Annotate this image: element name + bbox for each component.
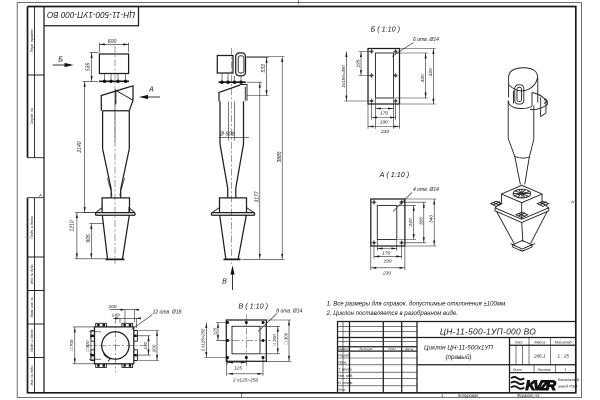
- svg-text:Взам. инв. №: Взам. инв. №: [30, 297, 34, 318]
- svg-text:□ 706: □ 706: [69, 339, 74, 351]
- svg-text:ЦН-11-500-1УП-000 ВО: ЦН-11-500-1УП-000 ВО: [47, 10, 135, 19]
- svg-text:А: А: [570, 199, 574, 204]
- svg-text:Масштаб: Масштаб: [555, 341, 573, 345]
- svg-text:Лист: Лист: [341, 347, 350, 351]
- svg-text:Б: Б: [58, 57, 63, 64]
- svg-text:190: 190: [380, 120, 388, 126]
- svg-text:Справ. №: Справ. №: [30, 108, 34, 124]
- svg-text:Масса: Масса: [534, 341, 545, 345]
- svg-text:535: 535: [86, 63, 92, 72]
- svg-text:Пров.: Пров.: [338, 360, 347, 364]
- svg-text:А: А: [38, 193, 42, 198]
- svg-text:Копировал: Копировал: [458, 393, 479, 398]
- svg-text:А: А: [148, 87, 154, 94]
- svg-text:140: 140: [111, 313, 119, 319]
- svg-text:завод РЭП: завод РЭП: [557, 384, 578, 389]
- svg-text:Утв.: Утв.: [338, 388, 346, 392]
- svg-text:905: 905: [86, 234, 92, 243]
- svg-text:2х195=390: 2х195=390: [341, 65, 346, 89]
- svg-text:№ докум.: № докум.: [359, 347, 373, 351]
- svg-text:1: 1: [441, 393, 443, 398]
- svg-text:125: 125: [234, 365, 242, 371]
- svg-text:190: 190: [383, 259, 391, 265]
- svg-text:230: 230: [382, 271, 391, 277]
- svg-text:1210: 1210: [69, 220, 75, 231]
- svg-text:Перв. примен.: Перв. примен.: [30, 29, 34, 53]
- svg-text:330: 330: [420, 74, 426, 82]
- svg-text:2 х125=250: 2 х125=250: [201, 328, 206, 352]
- svg-text:Лит.: Лит.: [514, 341, 523, 345]
- svg-text:533: 533: [261, 64, 267, 73]
- svg-text:Ø 508: Ø 508: [219, 131, 236, 137]
- svg-text:Дата: Дата: [404, 347, 413, 351]
- svg-text:3885: 3885: [277, 151, 283, 162]
- svg-text:1 : 25: 1 : 25: [557, 353, 569, 358]
- svg-text:240: 240: [408, 218, 414, 227]
- svg-text:Листов: Листов: [536, 368, 550, 372]
- svg-text:12 отв. Ø18: 12 отв. Ø18: [153, 310, 182, 316]
- svg-text:170: 170: [382, 250, 390, 256]
- svg-text:230: 230: [380, 129, 389, 135]
- svg-text:Б ( 1:10 ): Б ( 1:10 ): [371, 25, 400, 34]
- svg-text:195: 195: [355, 59, 361, 67]
- svg-text:Котельный: Котельный: [558, 377, 580, 382]
- svg-text:3177: 3177: [254, 191, 260, 202]
- svg-text:2 х125=250: 2 х125=250: [232, 377, 259, 383]
- svg-text:1. Все размеры для справок, до: 1. Все размеры для справок, допустимые о…: [327, 301, 507, 307]
- svg-text:□ 300: □ 300: [283, 332, 288, 344]
- svg-text:А ( 1:10 ): А ( 1:10 ): [379, 170, 410, 179]
- svg-text:Подп. и дата: Подп. и дата: [30, 216, 34, 239]
- svg-text:170: 170: [380, 111, 388, 117]
- svg-text:Н. контр.: Н. контр.: [338, 381, 353, 385]
- svg-text:600: 600: [108, 39, 117, 45]
- svg-text:Подп.: Подп.: [388, 347, 396, 351]
- svg-text:Подп. и дата: Подп. и дата: [30, 330, 34, 353]
- svg-text:430: 430: [428, 68, 434, 76]
- svg-text:Инв. № дубл.: Инв. № дубл.: [30, 264, 34, 284]
- svg-text:8 отв. Ø14: 8 отв. Ø14: [276, 308, 302, 314]
- svg-text:1: 1: [565, 368, 567, 372]
- svg-text:6 отв. Ø14: 6 отв. Ø14: [413, 37, 439, 43]
- svg-text:ЦН-11-500-1УП-000 ВО: ЦН-11-500-1УП-000 ВО: [440, 326, 536, 336]
- svg-text:Лист: Лист: [512, 368, 522, 372]
- svg-text:300: 300: [418, 217, 424, 225]
- svg-text:Инв. № подл.: Инв. № подл.: [30, 365, 34, 386]
- svg-text:В ( 1:10 ): В ( 1:10 ): [238, 301, 268, 310]
- svg-text:140: 140: [143, 342, 148, 350]
- svg-text:□ 200: □ 200: [272, 334, 277, 346]
- svg-text:В: В: [222, 279, 227, 286]
- svg-text:4 отв. Ø14: 4 отв. Ø14: [413, 187, 439, 193]
- svg-text:Разраб.: Разраб.: [338, 354, 350, 358]
- svg-text:Т. контр.: Т. контр.: [338, 367, 352, 371]
- svg-text:340: 340: [429, 215, 435, 223]
- svg-text:2. Циклон поставляется в разоб: 2. Циклон поставляется в разобранном вид…: [326, 311, 458, 317]
- svg-text:200: 200: [152, 344, 157, 353]
- svg-text:125: 125: [212, 327, 217, 335]
- svg-text:206,1: 206,1: [533, 353, 546, 358]
- svg-text:KVZR: KVZR: [526, 377, 557, 393]
- svg-text:Формат А3: Формат А3: [517, 393, 540, 398]
- svg-text:□ 500: □ 500: [85, 340, 90, 352]
- svg-text:200: 200: [107, 304, 116, 310]
- svg-text:Нач. отд.: Нач. отд.: [338, 374, 353, 378]
- svg-text:Циклон ЦН-11-500х1УП: Циклон ЦН-11-500х1УП: [424, 345, 493, 352]
- svg-text:(правый): (правый): [445, 353, 471, 361]
- svg-text:2140: 2140: [77, 141, 83, 153]
